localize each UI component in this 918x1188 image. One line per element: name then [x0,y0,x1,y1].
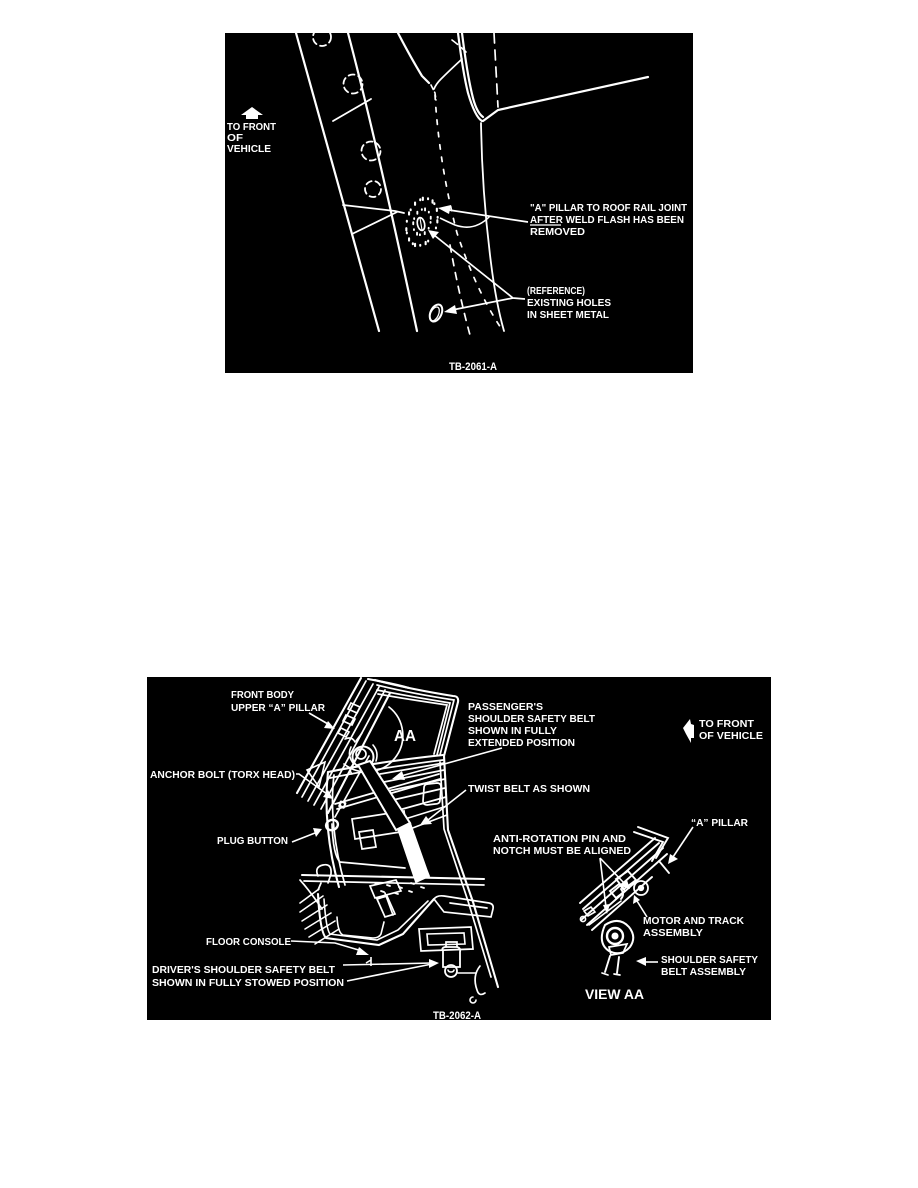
svg-text:(REFERENCE): (REFERENCE) [527,286,585,297]
svg-text:FRONT BODY: FRONT BODY [231,690,294,701]
svg-text:DRIVER'S SHOULDER SAFETY BELT: DRIVER'S SHOULDER SAFETY BELT [152,965,335,976]
svg-text:UPPER “A” PILLAR: UPPER “A” PILLAR [231,703,326,714]
svg-text:SHOULDER SAFETY BELT: SHOULDER SAFETY BELT [468,714,595,725]
svg-text:AFTER WELD FLASH HAS BEEN: AFTER WELD FLASH HAS BEEN [530,215,684,226]
svg-text:VIEW AA: VIEW AA [585,986,644,1002]
svg-text:FLOOR CONSOLE: FLOOR CONSOLE [206,937,291,948]
svg-text:PLUG BUTTON: PLUG BUTTON [217,836,288,847]
svg-text:EXTENDED POSITION: EXTENDED POSITION [468,738,575,749]
svg-text:ASSEMBLY: ASSEMBLY [643,928,703,939]
svg-text:TB-2061-A: TB-2061-A [449,361,497,373]
svg-text:PASSENGER'S: PASSENGER'S [468,702,543,713]
svg-text:ANTI-ROTATION PIN AND: ANTI-ROTATION PIN AND [493,834,626,845]
svg-text:TWIST BELT AS SHOWN: TWIST BELT AS SHOWN [468,784,590,795]
svg-text:“A” PILLAR: “A” PILLAR [691,818,749,829]
svg-text:TB-2062-A: TB-2062-A [433,1010,481,1020]
svg-text:SHOWN IN FULLY STOWED POSITION: SHOWN IN FULLY STOWED POSITION [152,978,344,989]
svg-text:ANCHOR BOLT (TORX HEAD): ANCHOR BOLT (TORX HEAD) [150,770,295,781]
svg-text:TO FRONT: TO FRONT [699,719,754,730]
svg-text:"A" PILLAR TO ROOF RAIL JOINT: "A" PILLAR TO ROOF RAIL JOINT [530,203,687,214]
svg-text:MOTOR AND TRACK: MOTOR AND TRACK [643,916,745,927]
svg-text:SHOWN IN FULLY: SHOWN IN FULLY [468,726,557,737]
svg-text:NOTCH MUST BE ALIGNED: NOTCH MUST BE ALIGNED [493,846,631,857]
svg-text:REMOVED: REMOVED [530,227,585,238]
svg-text:EXISTING HOLES: EXISTING HOLES [527,298,611,309]
svg-text:BELT ASSEMBLY: BELT ASSEMBLY [661,967,746,978]
svg-text:IN SHEET METAL: IN SHEET METAL [527,310,609,321]
svg-text:VEHICLE: VEHICLE [227,143,271,155]
svg-text:SHOULDER SAFETY: SHOULDER SAFETY [661,955,758,966]
svg-text:OF VEHICLE: OF VEHICLE [699,731,763,742]
svg-text:AA: AA [394,728,416,745]
